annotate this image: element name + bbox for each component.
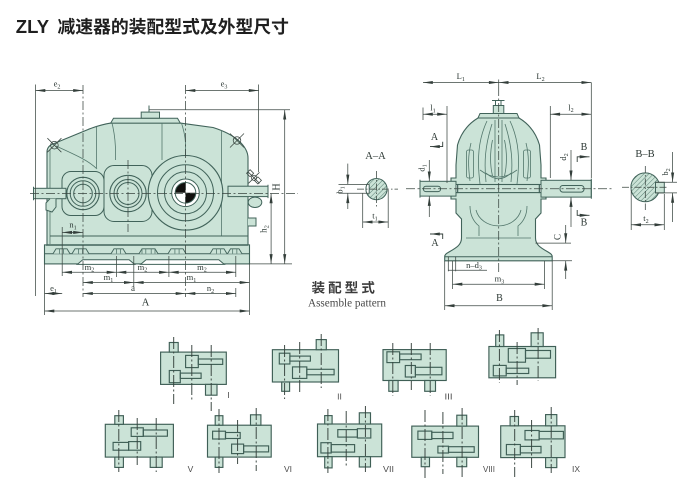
svg-text:n2: n2 [207,283,214,295]
svg-text:VIII: VIII [483,464,495,474]
svg-text:III: III [445,392,453,402]
svg-text:m1: m1 [104,272,114,284]
svg-text:A: A [431,132,439,143]
svg-text:VI: VI [284,464,292,474]
svg-text:ZLY: ZLY [16,16,50,37]
svg-text:e3: e3 [221,79,228,91]
svg-text:d2: d2 [558,153,570,160]
svg-text:A: A [431,238,439,249]
svg-text:e1: e1 [50,283,57,295]
svg-text:B: B [581,218,588,229]
svg-text:B–B: B–B [635,149,654,160]
svg-text:H: H [272,183,283,190]
svg-text:VII: VII [383,464,394,474]
svg-text:d1: d1 [417,164,429,171]
svg-text:Assemble pattern: Assemble pattern [308,298,386,310]
svg-text:IX: IX [572,464,580,474]
svg-text:l2: l2 [568,102,573,114]
svg-text:B: B [496,293,503,304]
svg-text:l1: l1 [430,103,435,115]
svg-text:b1: b1 [335,186,347,193]
svg-text:A–A: A–A [365,151,386,162]
svg-text:m1: m1 [187,272,197,284]
svg-text:m3: m3 [495,274,505,286]
svg-text:C: C [553,234,563,240]
svg-text:t1: t1 [372,211,377,223]
svg-text:h2: h2 [259,225,271,233]
svg-text:L1: L1 [457,71,465,83]
svg-text:I: I [227,390,229,400]
svg-text:e2: e2 [54,79,61,91]
svg-text:V: V [188,464,194,474]
svg-text:a: a [131,283,135,293]
svg-text:n–d3: n–d3 [466,260,482,272]
svg-text:b2: b2 [660,168,672,175]
svg-text:t2: t2 [643,213,648,225]
svg-text:A: A [142,298,150,309]
svg-text:L2: L2 [536,71,544,83]
svg-text:II: II [337,392,342,402]
svg-text:B: B [581,142,588,153]
